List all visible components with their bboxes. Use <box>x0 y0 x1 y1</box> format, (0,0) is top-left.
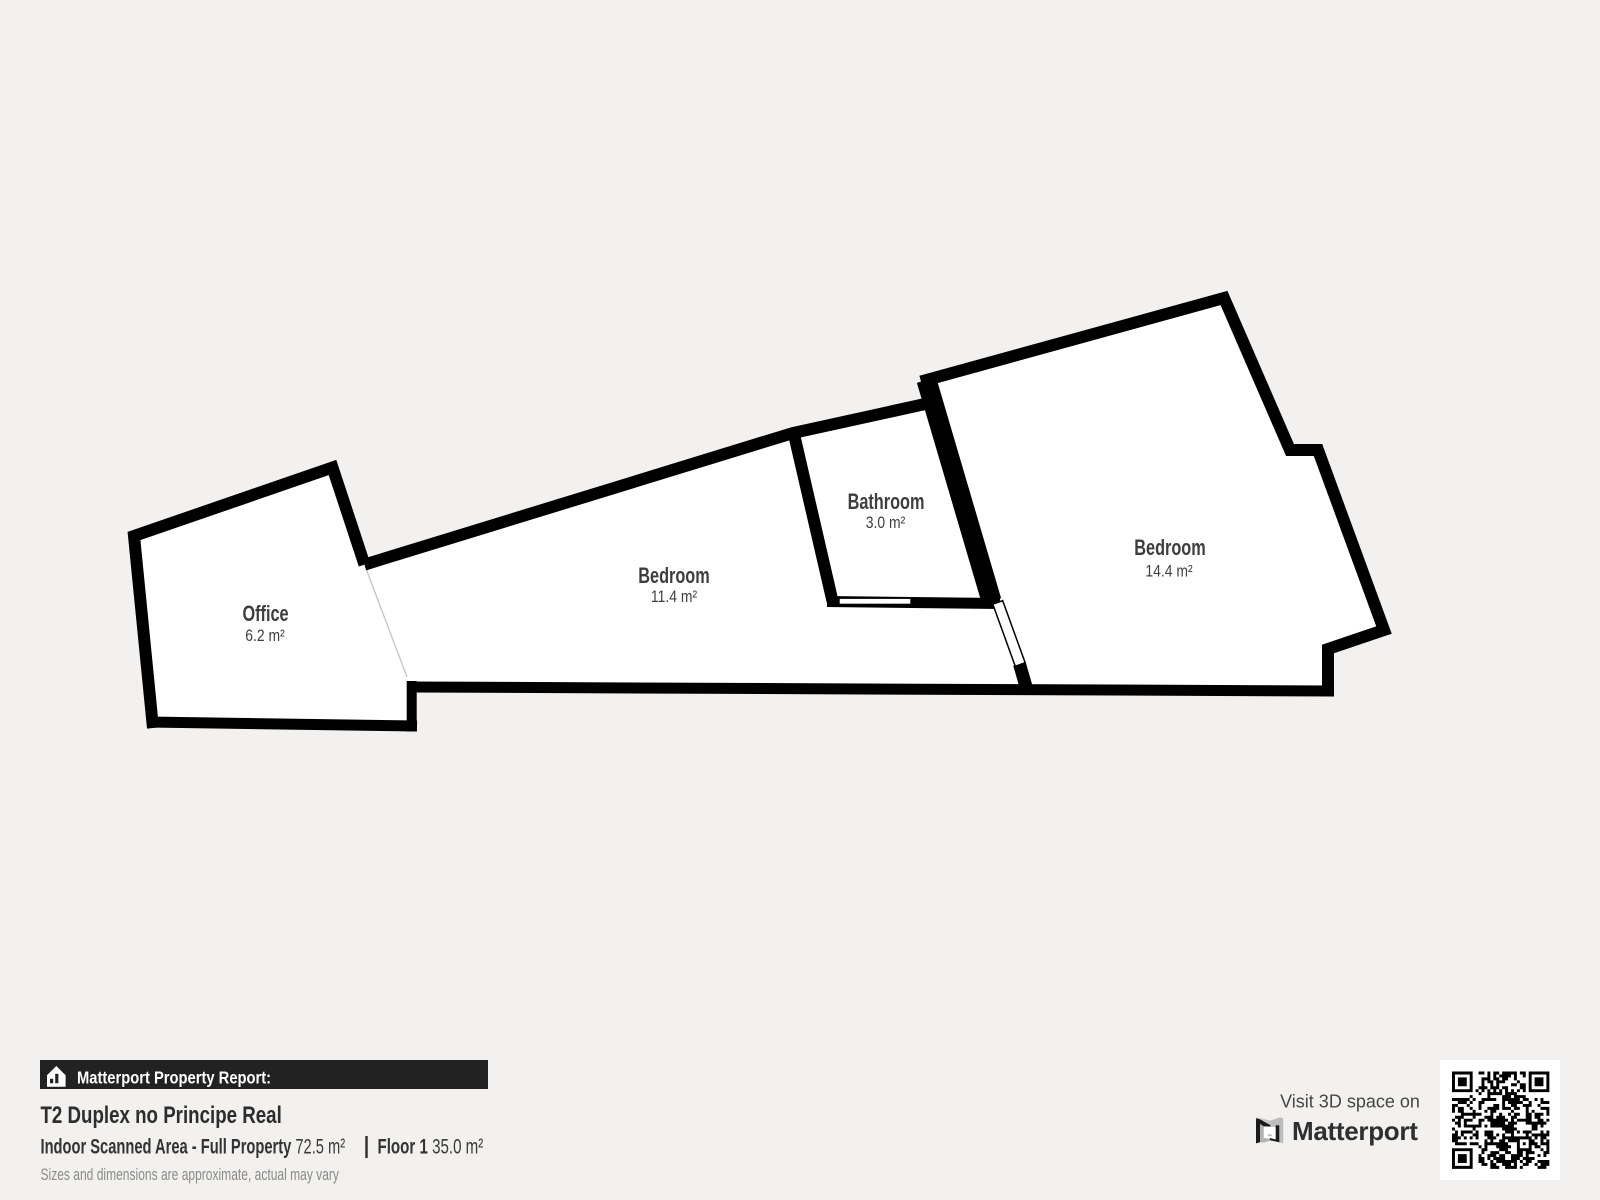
svg-text:Matterport: Matterport <box>1292 1116 1418 1146</box>
svg-text:Bathroom: Bathroom <box>848 490 925 515</box>
svg-text:Sizes and dimensions are appro: Sizes and dimensions are approximate, ac… <box>41 1166 340 1184</box>
svg-text:6.2 m²: 6.2 m² <box>245 627 284 646</box>
svg-text:Bedroom: Bedroom <box>638 564 709 589</box>
svg-text:Office: Office <box>242 602 288 627</box>
svg-text:14.4 m²: 14.4 m² <box>1145 562 1192 581</box>
svg-text:Visit 3D space on: Visit 3D space on <box>1280 1092 1420 1112</box>
svg-text:Indoor Scanned Area - Full Pro: Indoor Scanned Area - Full Property 72.5… <box>41 1135 346 1158</box>
svg-text:Floor 1 35.0 m²: Floor 1 35.0 m² <box>378 1134 484 1158</box>
svg-text:11.4 m²: 11.4 m² <box>651 588 697 607</box>
svg-text:Matterport Property Report:: Matterport Property Report: <box>77 1068 271 1088</box>
svg-text:3.0 m²: 3.0 m² <box>866 514 905 533</box>
svg-text:Bedroom: Bedroom <box>1134 536 1205 561</box>
svg-text:T2 Duplex no Principe Real: T2 Duplex no Principe Real <box>41 1102 282 1129</box>
